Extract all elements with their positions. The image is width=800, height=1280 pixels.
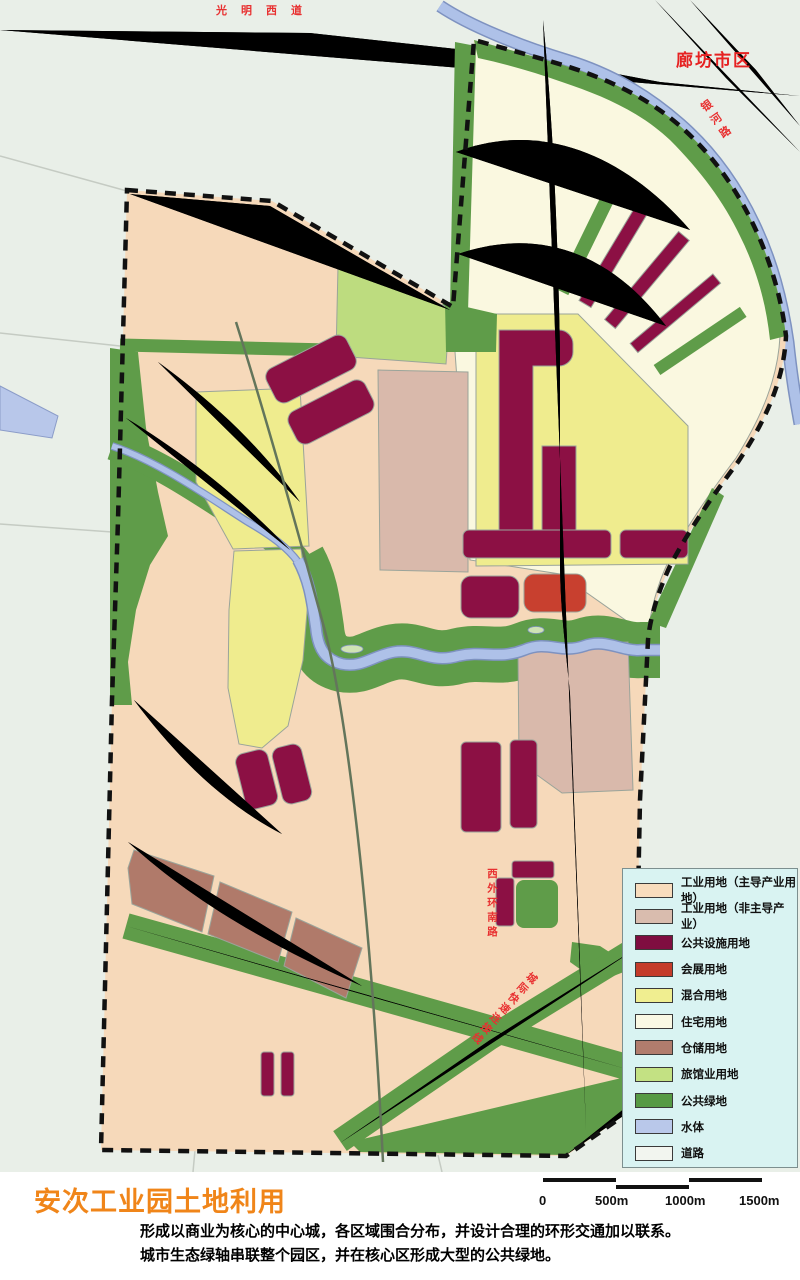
page-title: 安次工业园土地利用 <box>34 1180 286 1219</box>
legend-swatch <box>635 883 673 898</box>
legend-label: 水体 <box>681 1119 704 1135</box>
legend-swatch <box>635 909 673 924</box>
legend-item: 工业用地（非主导产业） <box>635 903 797 929</box>
scale-segment <box>616 1185 689 1189</box>
legend-swatch <box>635 1119 673 1134</box>
legend-item: 会展用地 <box>635 956 797 982</box>
legend-label: 住宅用地 <box>681 1014 727 1030</box>
legend-item: 公共设施用地 <box>635 930 797 956</box>
scale-label: 500m <box>595 1193 628 1208</box>
road-label-top: 光明西道 <box>216 2 316 18</box>
legend-label: 公共绿地 <box>681 1093 727 1109</box>
footer: 安次工业园土地利用 0 500m 1000m 1500m 形成以商业为核心的中心… <box>0 1172 800 1280</box>
legend-item: 混合用地 <box>635 982 797 1008</box>
legend-swatch <box>635 1093 673 1108</box>
city-label: 廊坊市区 <box>676 46 752 71</box>
legend: 工业用地（主导产业用地） 工业用地（非主导产业） 公共设施用地 会展用地 混合用… <box>622 868 798 1168</box>
legend-item: 旅馆业用地 <box>635 1061 797 1087</box>
description-line: 形成以商业为核心的中心城，各区域围合分布，并设计合理的环形交通加以联系。 <box>140 1220 680 1244</box>
scale-label: 1000m <box>665 1193 705 1208</box>
legend-label: 工业用地（非主导产业） <box>681 900 797 932</box>
legend-item: 工业用地（主导产业用地） <box>635 877 797 903</box>
road-label-west-ring: 西外环南路 <box>485 868 500 941</box>
legend-swatch <box>635 962 673 977</box>
legend-swatch <box>635 1146 673 1161</box>
legend-label: 道路 <box>681 1145 704 1161</box>
scale-segment <box>689 1178 762 1182</box>
legend-item: 水体 <box>635 1114 797 1140</box>
legend-swatch <box>635 935 673 950</box>
scale-segment <box>543 1178 616 1182</box>
legend-swatch <box>635 1067 673 1082</box>
legend-item: 仓储用地 <box>635 1035 797 1061</box>
legend-label: 旅馆业用地 <box>681 1066 739 1082</box>
legend-swatch <box>635 1014 673 1029</box>
legend-label: 仓储用地 <box>681 1040 727 1056</box>
legend-label: 公共设施用地 <box>681 935 750 951</box>
legend-label: 会展用地 <box>681 961 727 977</box>
description-line: 城市生态绿轴串联整个园区，并在核心区形成大型的公共绿地。 <box>140 1244 680 1268</box>
legend-swatch <box>635 1040 673 1055</box>
expo-parcel <box>524 574 586 612</box>
scale-label: 1500m <box>739 1193 779 1208</box>
page: 光明西道 廊坊市区 银河路 西外环南路 城际快速连接线 工业用地（主导产业用地）… <box>0 0 800 1280</box>
legend-item: 住宅用地 <box>635 1008 797 1034</box>
scale-bar: 0 500m 1000m 1500m <box>543 1178 765 1212</box>
description: 形成以商业为核心的中心城，各区域围合分布，并设计合理的环形交通加以联系。 城市生… <box>140 1220 680 1268</box>
legend-item: 道路 <box>635 1140 797 1166</box>
legend-swatch <box>635 988 673 1003</box>
legend-label: 混合用地 <box>681 987 727 1003</box>
scale-label: 0 <box>539 1193 546 1208</box>
legend-item: 公共绿地 <box>635 1087 797 1113</box>
